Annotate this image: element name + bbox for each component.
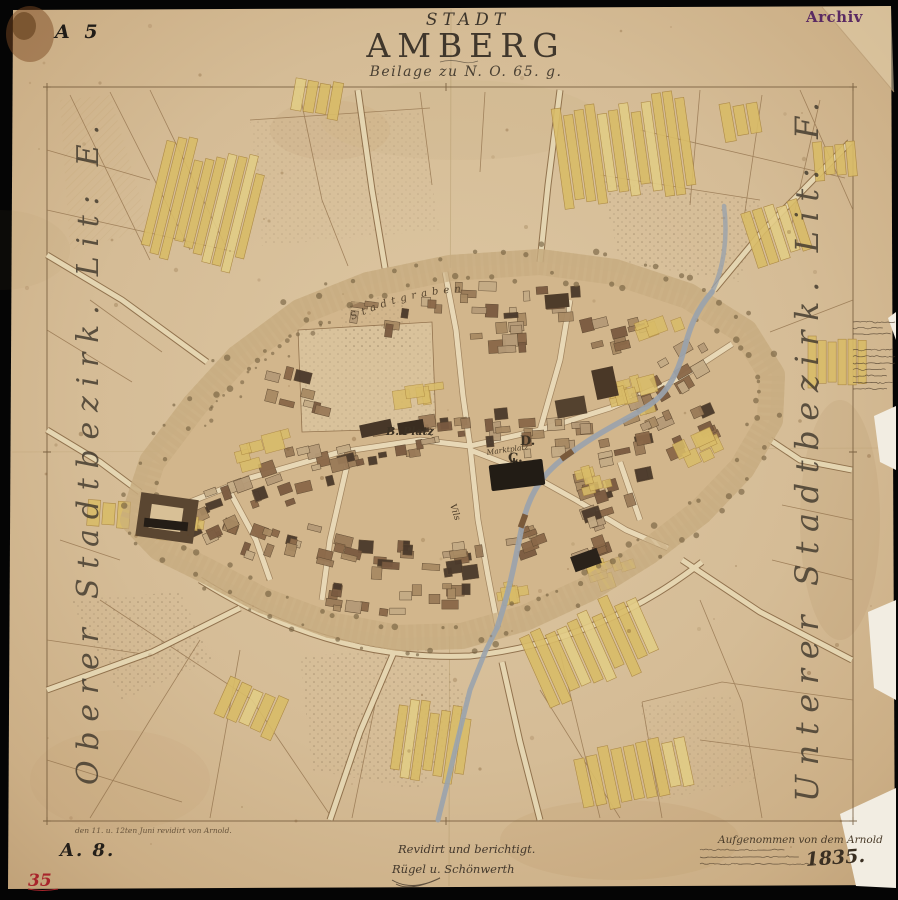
sheet-number-label: A 5	[53, 21, 102, 43]
title-subtitle: Beilage zu N. O. 65. g.	[369, 64, 563, 80]
survey-credit-line: Aufgenommen von dem Arnold	[717, 834, 883, 846]
left-margin-district-label: Oberer Stadtbezirk. Lit: E.	[71, 125, 106, 785]
scanned-map-page: Stadtgraben B. Platz D. C. Marktplatz Vi…	[0, 0, 898, 900]
year-label: 1835.	[805, 845, 866, 871]
signature-line2: Rügel u. Schönwerth	[391, 862, 515, 876]
signature-line1: Revidirt und berichtigt.	[397, 842, 535, 856]
map-canvas: Stadtgraben B. Platz D. C. Marktplatz Vi…	[0, 0, 898, 900]
archive-stamp: Archiv	[805, 8, 864, 26]
title-main: AMBERG	[365, 26, 565, 65]
revision-note: den 11. u. 12ten Juni revidirt von Arnol…	[75, 826, 232, 835]
red-inventory-number: 35	[28, 871, 52, 891]
plate-label: A. 8.	[58, 840, 115, 861]
district-b-label: B. Platz	[385, 425, 435, 438]
